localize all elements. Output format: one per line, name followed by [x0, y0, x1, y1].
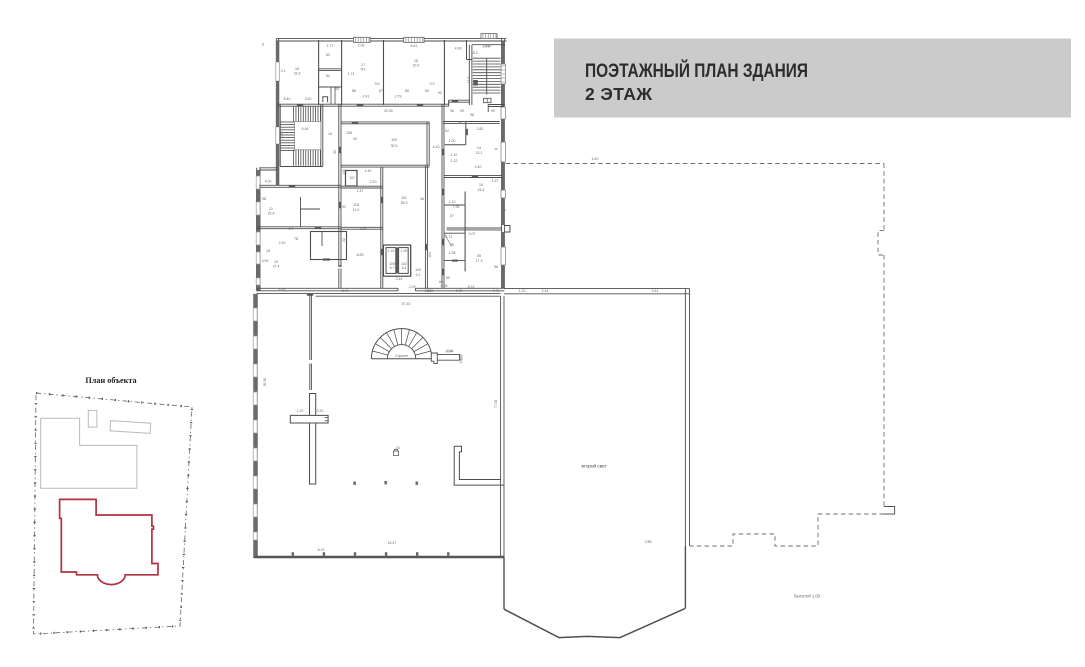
svg-text:89: 89 [425, 89, 429, 93]
svg-text:18: 18 [414, 59, 418, 63]
svg-text:6.83: 6.83 [357, 253, 364, 257]
svg-text:59: 59 [446, 276, 450, 280]
svg-text:15.4: 15.4 [478, 188, 485, 192]
svg-text:5.7: 5.7 [390, 266, 395, 270]
svg-text:2.09: 2.09 [409, 285, 416, 289]
svg-text:2.88: 2.88 [645, 540, 652, 544]
svg-text:2.99: 2.99 [358, 44, 365, 48]
svg-text:17: 17 [361, 63, 365, 67]
svg-text:112: 112 [472, 51, 478, 55]
svg-text:8.40: 8.40 [342, 289, 349, 293]
svg-text:1.57: 1.57 [492, 179, 499, 183]
svg-text:4.40: 4.40 [475, 165, 482, 169]
svg-text:15: 15 [479, 183, 483, 187]
svg-text:1.40: 1.40 [365, 169, 372, 173]
svg-text:2.07: 2.07 [469, 232, 476, 236]
svg-text:2.40: 2.40 [279, 241, 286, 245]
svg-text:118: 118 [353, 203, 359, 207]
svg-text:57.40: 57.40 [402, 302, 411, 306]
svg-text:2.42: 2.42 [483, 45, 490, 49]
svg-text:20.2: 20.2 [413, 64, 420, 68]
svg-text:1.00: 1.00 [449, 139, 456, 143]
svg-text:2.44: 2.44 [542, 289, 549, 293]
svg-text:85: 85 [335, 87, 339, 91]
svg-text:23.3: 23.3 [294, 72, 301, 76]
svg-text:второй свет: второй свет [581, 463, 607, 469]
svg-text:105: 105 [342, 169, 346, 175]
svg-text:3.40: 3.40 [305, 97, 312, 101]
svg-text:2 пролет: 2 пролет [395, 354, 409, 358]
svg-text:4.40: 4.40 [592, 157, 599, 161]
svg-text:2.44: 2.44 [396, 277, 403, 281]
svg-text:78: 78 [294, 237, 298, 241]
svg-text:6: 6 [262, 43, 264, 47]
svg-text:35: 35 [458, 121, 462, 125]
svg-text:1.71: 1.71 [446, 235, 453, 239]
svg-text:2.79: 2.79 [395, 95, 402, 99]
svg-text:16: 16 [295, 67, 299, 71]
svg-text:92: 92 [342, 205, 346, 209]
svg-text:1.10: 1.10 [451, 153, 458, 157]
svg-text:98: 98 [470, 113, 474, 117]
svg-text:35.50: 35.50 [263, 378, 267, 387]
svg-text:6.90: 6.90 [279, 288, 286, 292]
svg-text:20,90: 20,90 [384, 109, 393, 113]
svg-text:1.16: 1.16 [388, 249, 395, 253]
svg-text:16: 16 [328, 132, 332, 136]
svg-text:95: 95 [460, 109, 464, 113]
svg-text:6.61: 6.61 [411, 44, 418, 48]
svg-text:30: 30 [333, 150, 337, 154]
svg-text:3.1: 3.1 [281, 69, 286, 73]
svg-text:ПЗ: ПЗ [361, 68, 366, 72]
svg-text:0.44: 0.44 [652, 289, 659, 293]
svg-text:9.1: 9.1 [416, 273, 421, 277]
svg-text:22: 22 [342, 238, 346, 242]
svg-text:56: 56 [494, 265, 498, 269]
svg-text:84: 84 [326, 74, 330, 78]
svg-text:14.6: 14.6 [467, 77, 471, 84]
svg-text:21: 21 [269, 207, 273, 211]
svg-text:2.81: 2.81 [477, 127, 484, 131]
svg-text:8.19: 8.19 [318, 548, 325, 552]
svg-text:ПОЭТАЖНЫЙ ПЛАН ЗДАНИЯ: ПОЭТАЖНЫЙ ПЛАН ЗДАНИЯ [585, 58, 808, 82]
svg-text:0.20: 0.20 [317, 409, 324, 413]
svg-text:1.38: 1.38 [449, 251, 456, 255]
svg-text:77.06: 77.06 [494, 400, 498, 409]
svg-text:15.47: 15.47 [388, 541, 397, 545]
svg-text:1.20: 1.20 [297, 409, 304, 413]
svg-text:14: 14 [477, 146, 481, 150]
svg-text:90: 90 [438, 91, 442, 95]
svg-text:4: 4 [503, 209, 507, 211]
svg-text:108: 108 [346, 131, 352, 135]
svg-text:24: 24 [396, 446, 400, 450]
svg-text:151: 151 [401, 196, 407, 200]
svg-text:4.85: 4.85 [280, 132, 284, 139]
svg-text:103: 103 [415, 268, 421, 272]
svg-text:0.9: 0.9 [430, 82, 435, 86]
svg-text:86: 86 [352, 89, 356, 93]
svg-text:План объекта: План объекта [85, 376, 136, 385]
svg-text:15.4: 15.4 [268, 212, 275, 216]
svg-text:100: 100 [391, 138, 397, 142]
svg-text:8.40: 8.40 [284, 97, 291, 101]
svg-text:1.47: 1.47 [357, 189, 364, 193]
svg-text:1.10: 1.10 [449, 200, 456, 204]
svg-text:88: 88 [405, 89, 409, 93]
svg-text:0.14: 0.14 [447, 349, 454, 353]
svg-text:1.77: 1.77 [327, 44, 334, 48]
svg-text:4.90: 4.90 [262, 259, 269, 263]
svg-text:4.00: 4.00 [265, 180, 272, 184]
svg-text:3.5: 3.5 [375, 82, 380, 86]
svg-text:5.4: 5.4 [402, 266, 407, 270]
svg-text:4.46: 4.46 [302, 127, 309, 131]
svg-text:1.90: 1.90 [401, 249, 408, 253]
svg-text:96: 96 [450, 109, 454, 113]
svg-text:7.28: 7.28 [453, 205, 460, 209]
svg-text:1.22: 1.22 [519, 289, 526, 293]
svg-text:1.74: 1.74 [348, 72, 355, 76]
svg-text:30: 30 [353, 137, 357, 141]
svg-text:17.3: 17.3 [476, 259, 483, 263]
svg-text:19: 19 [274, 260, 278, 264]
svg-text:87: 87 [379, 89, 383, 93]
svg-text:27.4: 27.4 [273, 265, 280, 269]
svg-text:36: 36 [420, 197, 424, 201]
svg-text:2.9: 2.9 [289, 227, 294, 231]
svg-text:58: 58 [450, 243, 454, 247]
svg-text:55: 55 [477, 254, 481, 258]
svg-text:0.40: 0.40 [425, 289, 432, 293]
svg-text:30.3: 30.3 [391, 144, 398, 148]
svg-text:92: 92 [445, 129, 449, 133]
svg-text:98: 98 [262, 197, 266, 201]
svg-text:8.31: 8.31 [468, 285, 475, 289]
svg-text:4.10: 4.10 [433, 145, 440, 149]
svg-text:1.22: 1.22 [451, 159, 458, 163]
svg-text:104: 104 [428, 252, 432, 258]
svg-text:ш: ш [495, 147, 498, 151]
svg-text:4.71: 4.71 [493, 289, 500, 293]
svg-text:Высотой 1.00: Высотой 1.00 [794, 594, 821, 599]
svg-text:2.41: 2.41 [363, 95, 370, 99]
svg-text:13.1: 13.1 [476, 151, 483, 155]
svg-text:2.10: 2.10 [370, 180, 377, 184]
svg-text:2 ЭТАЖ: 2 ЭТАЖ [585, 84, 653, 104]
svg-text:57: 57 [450, 214, 454, 218]
svg-text:1.83: 1.83 [360, 227, 367, 231]
svg-text:11.9: 11.9 [353, 208, 360, 212]
svg-text:107: 107 [349, 176, 355, 180]
svg-text:0.08: 0.08 [441, 284, 448, 288]
svg-text:99: 99 [491, 109, 495, 113]
svg-text:18: 18 [266, 249, 270, 253]
svg-text:83: 83 [326, 53, 330, 57]
svg-text:1.22: 1.22 [456, 289, 463, 293]
svg-text:35.3: 35.3 [401, 201, 408, 205]
svg-text:0.90: 0.90 [459, 357, 463, 364]
svg-text:4.99: 4.99 [455, 47, 462, 51]
